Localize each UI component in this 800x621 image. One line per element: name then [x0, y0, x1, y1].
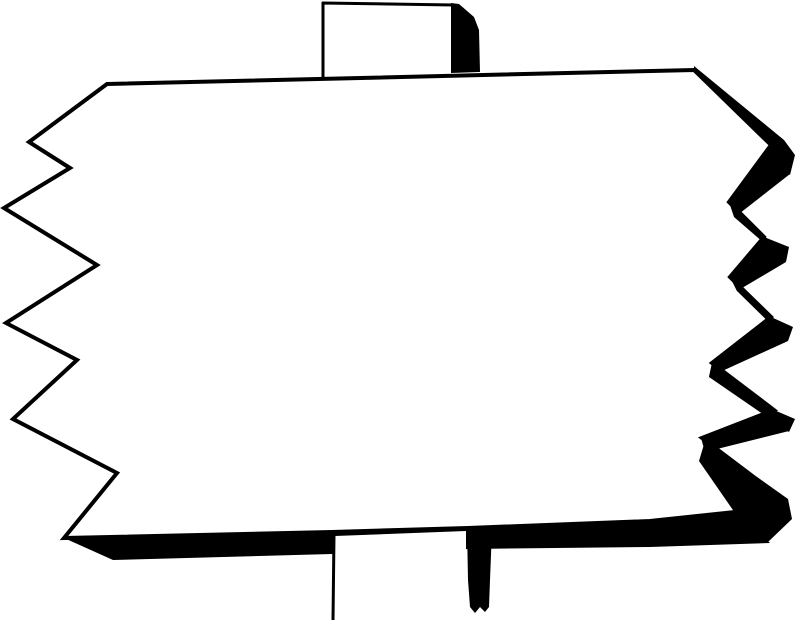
bottom-post-face — [335, 531, 466, 566]
top-post-outline — [322, 2, 454, 78]
top-post — [322, 2, 480, 78]
top-post-shadow — [451, 3, 480, 73]
sign-board — [4, 66, 795, 560]
bottom-post-shadow — [467, 529, 492, 613]
bottom-post-left-edge — [333, 534, 334, 620]
signpost-illustration — [0, 0, 800, 621]
board-face — [4, 70, 774, 538]
signpost-clipart — [0, 0, 800, 621]
bottom-post — [333, 529, 492, 620]
